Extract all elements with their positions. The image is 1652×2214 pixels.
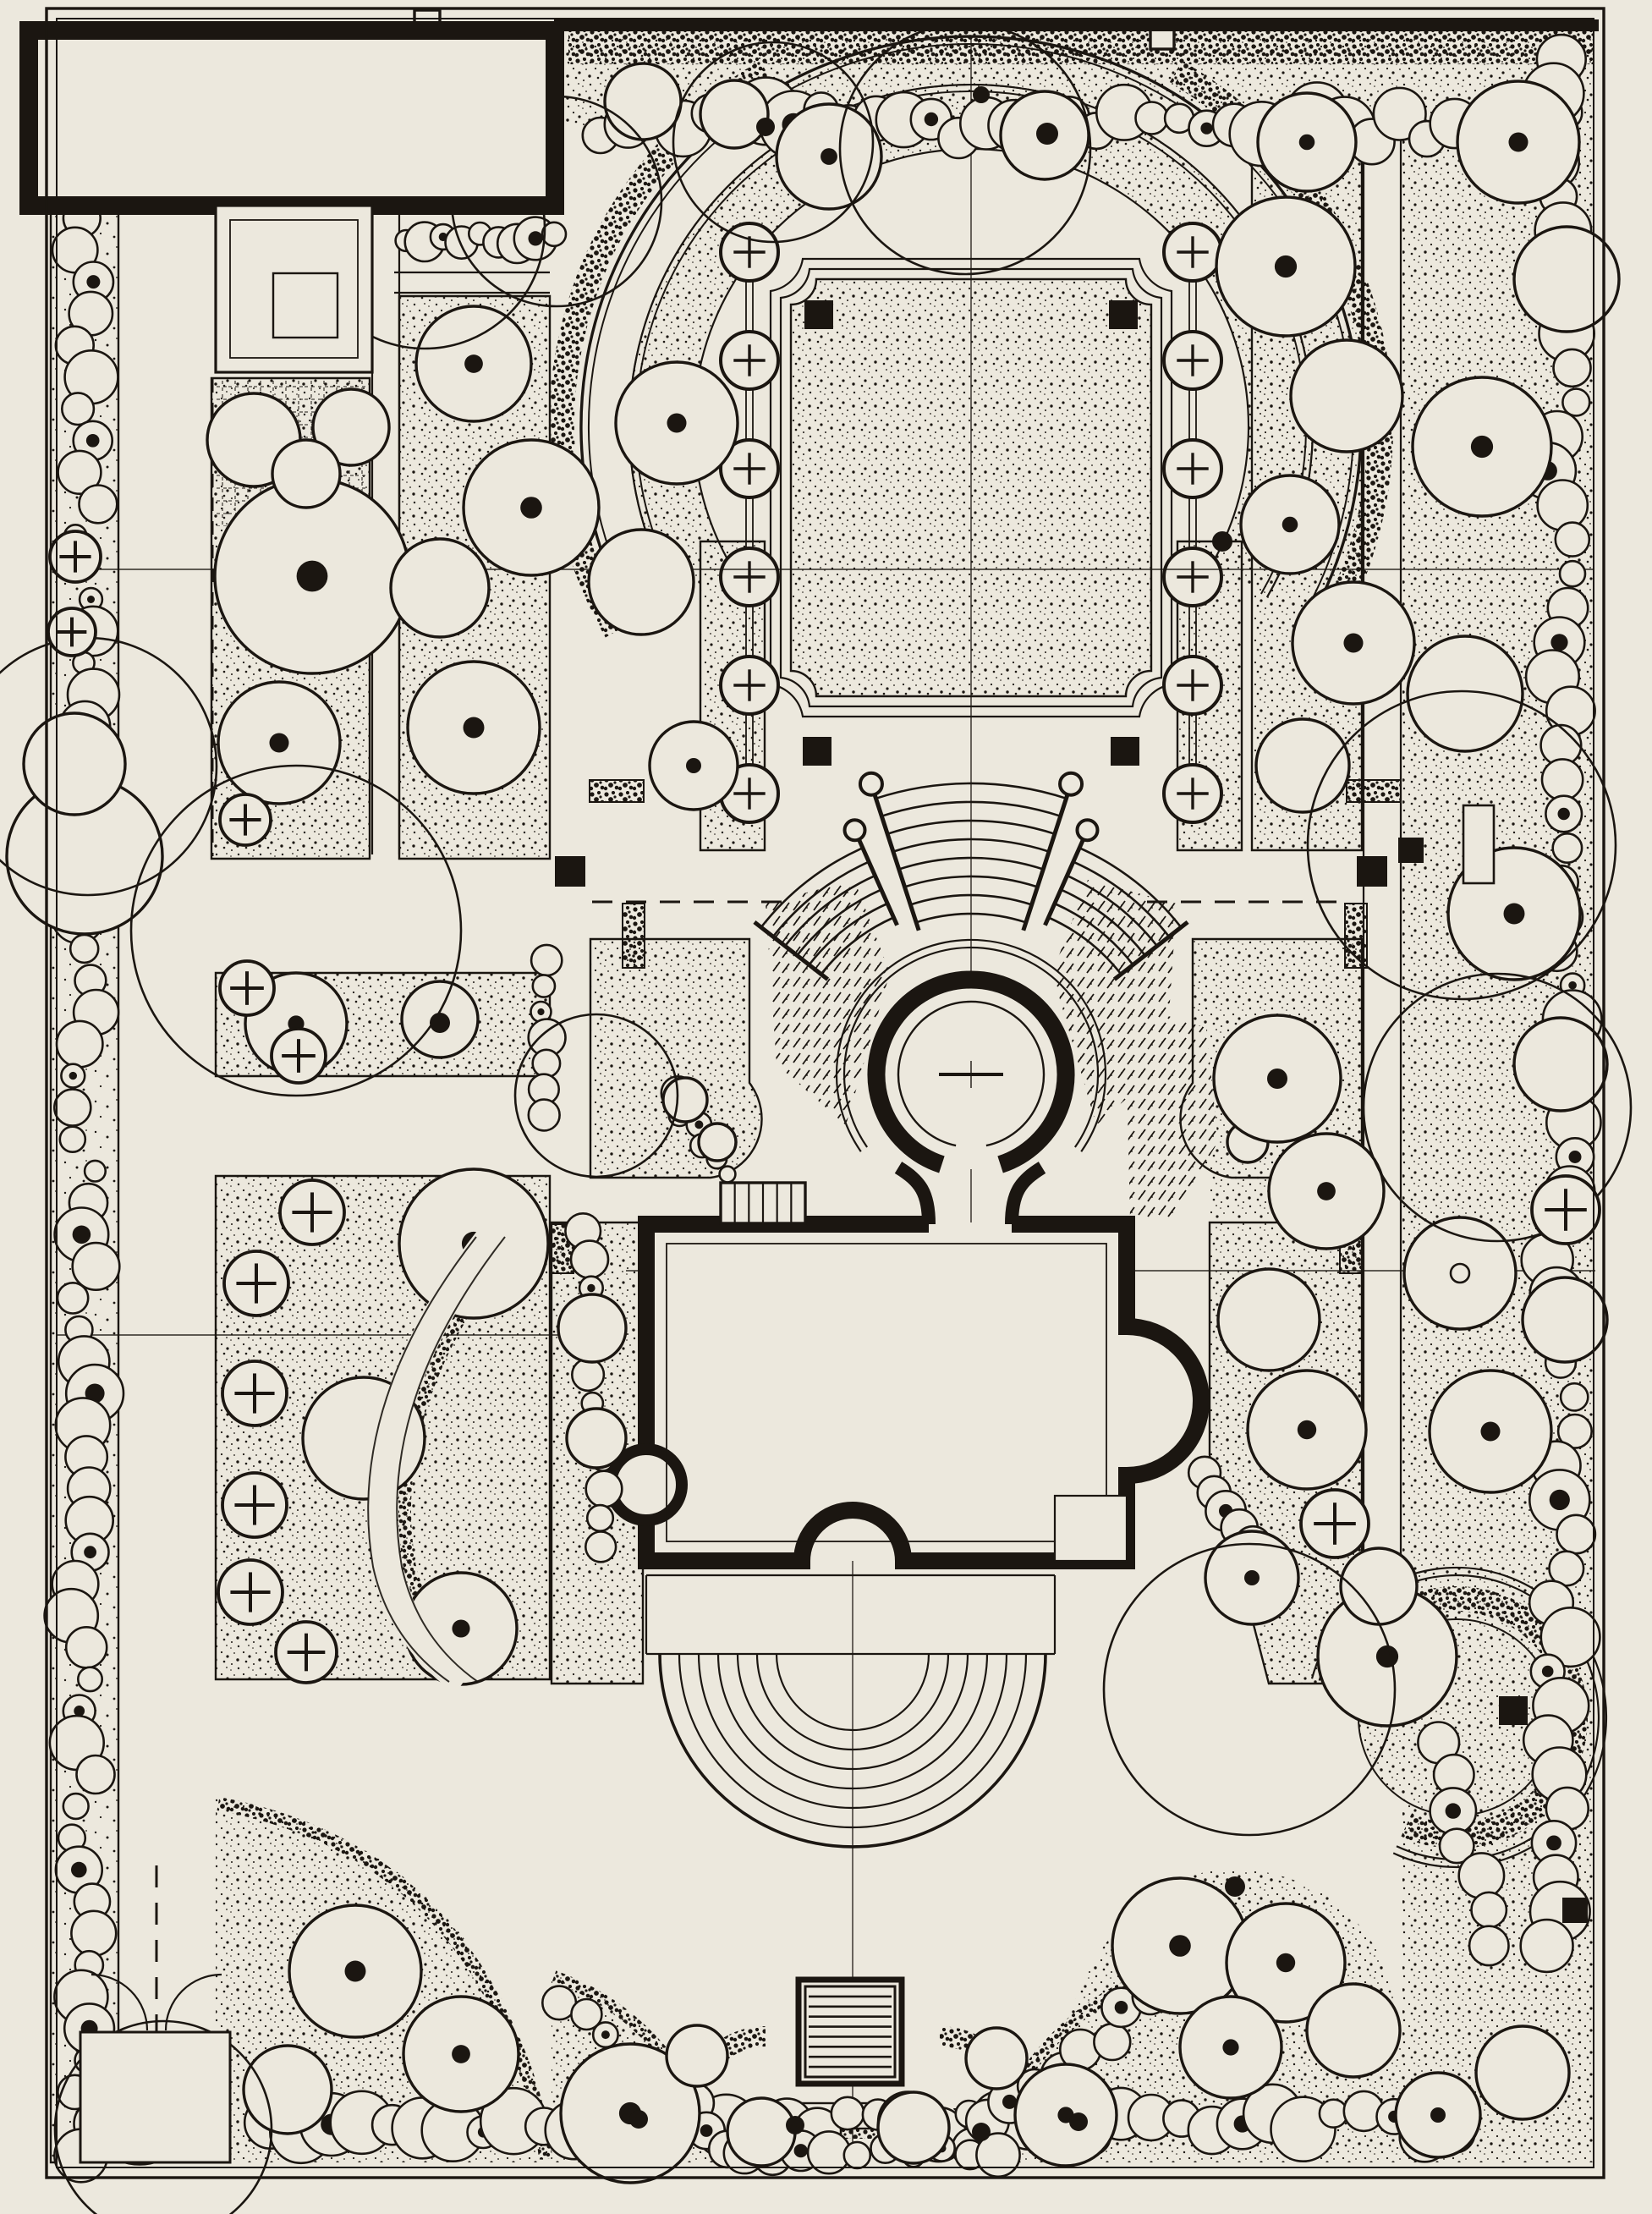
shrub <box>80 486 118 524</box>
shrub <box>54 1090 91 1126</box>
shrub <box>533 975 555 997</box>
landscape-plan-scan <box>0 0 1652 2214</box>
shrub <box>1553 833 1582 862</box>
pier <box>1398 838 1424 863</box>
tree-canopy <box>567 1409 626 1468</box>
tree-canopy <box>1307 1984 1400 2077</box>
shrub <box>720 1167 736 1183</box>
shrub <box>531 945 562 975</box>
garden-seat <box>1463 805 1494 883</box>
shrub <box>572 1359 604 1391</box>
shrub <box>831 2097 864 2129</box>
pier <box>1562 1898 1588 1923</box>
pier <box>804 300 833 329</box>
tree-canopy <box>605 63 681 140</box>
shrub <box>63 1794 89 1819</box>
great-terrace <box>611 1183 1201 1561</box>
tree-dot <box>430 1013 450 1033</box>
tree-dot <box>629 2110 648 2129</box>
tree-dot <box>1036 123 1058 145</box>
shrub <box>571 1241 608 1278</box>
tree-canopy <box>1256 719 1349 812</box>
shrub <box>529 1100 560 1131</box>
shrub <box>71 1911 116 1956</box>
shrub <box>586 1471 623 1508</box>
shrub <box>1136 102 1168 135</box>
hedge-patch <box>590 780 644 802</box>
tree-canopy <box>1404 1217 1516 1329</box>
shrub <box>585 1532 616 1563</box>
tree-canopy <box>966 2028 1027 2089</box>
shrub <box>85 1161 106 1182</box>
tree-canopy <box>663 1078 707 1122</box>
shrub <box>1472 1893 1507 1927</box>
shrub <box>77 1755 115 1794</box>
tree-dot <box>1212 531 1232 552</box>
terrace-se-landing <box>1055 1496 1127 1561</box>
pier <box>1109 300 1138 329</box>
shrub <box>844 2142 870 2168</box>
tree-canopy <box>244 2046 332 2134</box>
tree-canopy <box>1408 636 1523 751</box>
tree-canopy <box>589 530 694 635</box>
shrub <box>73 1243 120 1290</box>
gate-court <box>80 2032 230 2162</box>
shrub <box>587 1505 613 1531</box>
shrub <box>78 1667 102 1691</box>
tree-dot <box>973 86 990 103</box>
shrub <box>1557 1515 1595 1553</box>
pier <box>1499 1696 1528 1725</box>
shrub <box>1469 1926 1508 1965</box>
newel-ball <box>845 820 865 840</box>
shrub <box>533 1050 560 1077</box>
tree-canopy <box>24 713 125 815</box>
shrub <box>60 1127 85 1152</box>
newel-ball <box>1060 773 1082 795</box>
hedge-patch <box>623 904 645 968</box>
tree-dot <box>1225 1876 1245 1897</box>
square-pool-water <box>805 1986 895 2077</box>
shrub <box>1094 2024 1130 2060</box>
tree-canopy <box>558 1294 626 1362</box>
plan-drawing <box>0 0 1652 2214</box>
entry-court <box>216 206 372 372</box>
shrub <box>1542 759 1583 799</box>
shrub <box>57 1021 102 1067</box>
tree-canopy <box>1218 1269 1320 1371</box>
shrub <box>1538 481 1588 530</box>
shrub <box>62 393 94 425</box>
shrub <box>1459 1853 1504 1898</box>
newel-ball <box>860 773 882 795</box>
tree-canopy <box>1291 340 1402 452</box>
shrub <box>1561 1383 1588 1410</box>
building-footprint <box>29 30 555 206</box>
pier <box>1111 737 1139 766</box>
shrub <box>1554 349 1591 387</box>
tree-canopy <box>667 2025 727 2086</box>
tree-dot <box>1069 2112 1088 2131</box>
shrub <box>1521 1920 1573 1972</box>
tree-dot <box>756 118 775 136</box>
shrub <box>1562 389 1589 416</box>
tree-canopy <box>700 80 768 148</box>
tree-canopy <box>272 440 340 508</box>
tree-canopy <box>699 1123 736 1161</box>
pier <box>1357 856 1387 887</box>
shrub <box>66 1627 107 1667</box>
pier <box>803 737 831 766</box>
tree-dot <box>972 2123 991 2141</box>
tree-canopy <box>727 2098 795 2166</box>
tree-canopy <box>1476 2026 1569 2119</box>
shrub <box>70 935 98 963</box>
tree-dot <box>786 2116 804 2134</box>
shrub <box>1556 523 1589 557</box>
pier <box>555 856 585 887</box>
hedge-patch <box>1347 780 1401 802</box>
tree-canopy <box>878 2092 949 2163</box>
shrub <box>58 1283 88 1313</box>
newel-ball <box>1077 820 1097 840</box>
shrub <box>1560 561 1585 586</box>
tree-canopy <box>391 539 489 637</box>
